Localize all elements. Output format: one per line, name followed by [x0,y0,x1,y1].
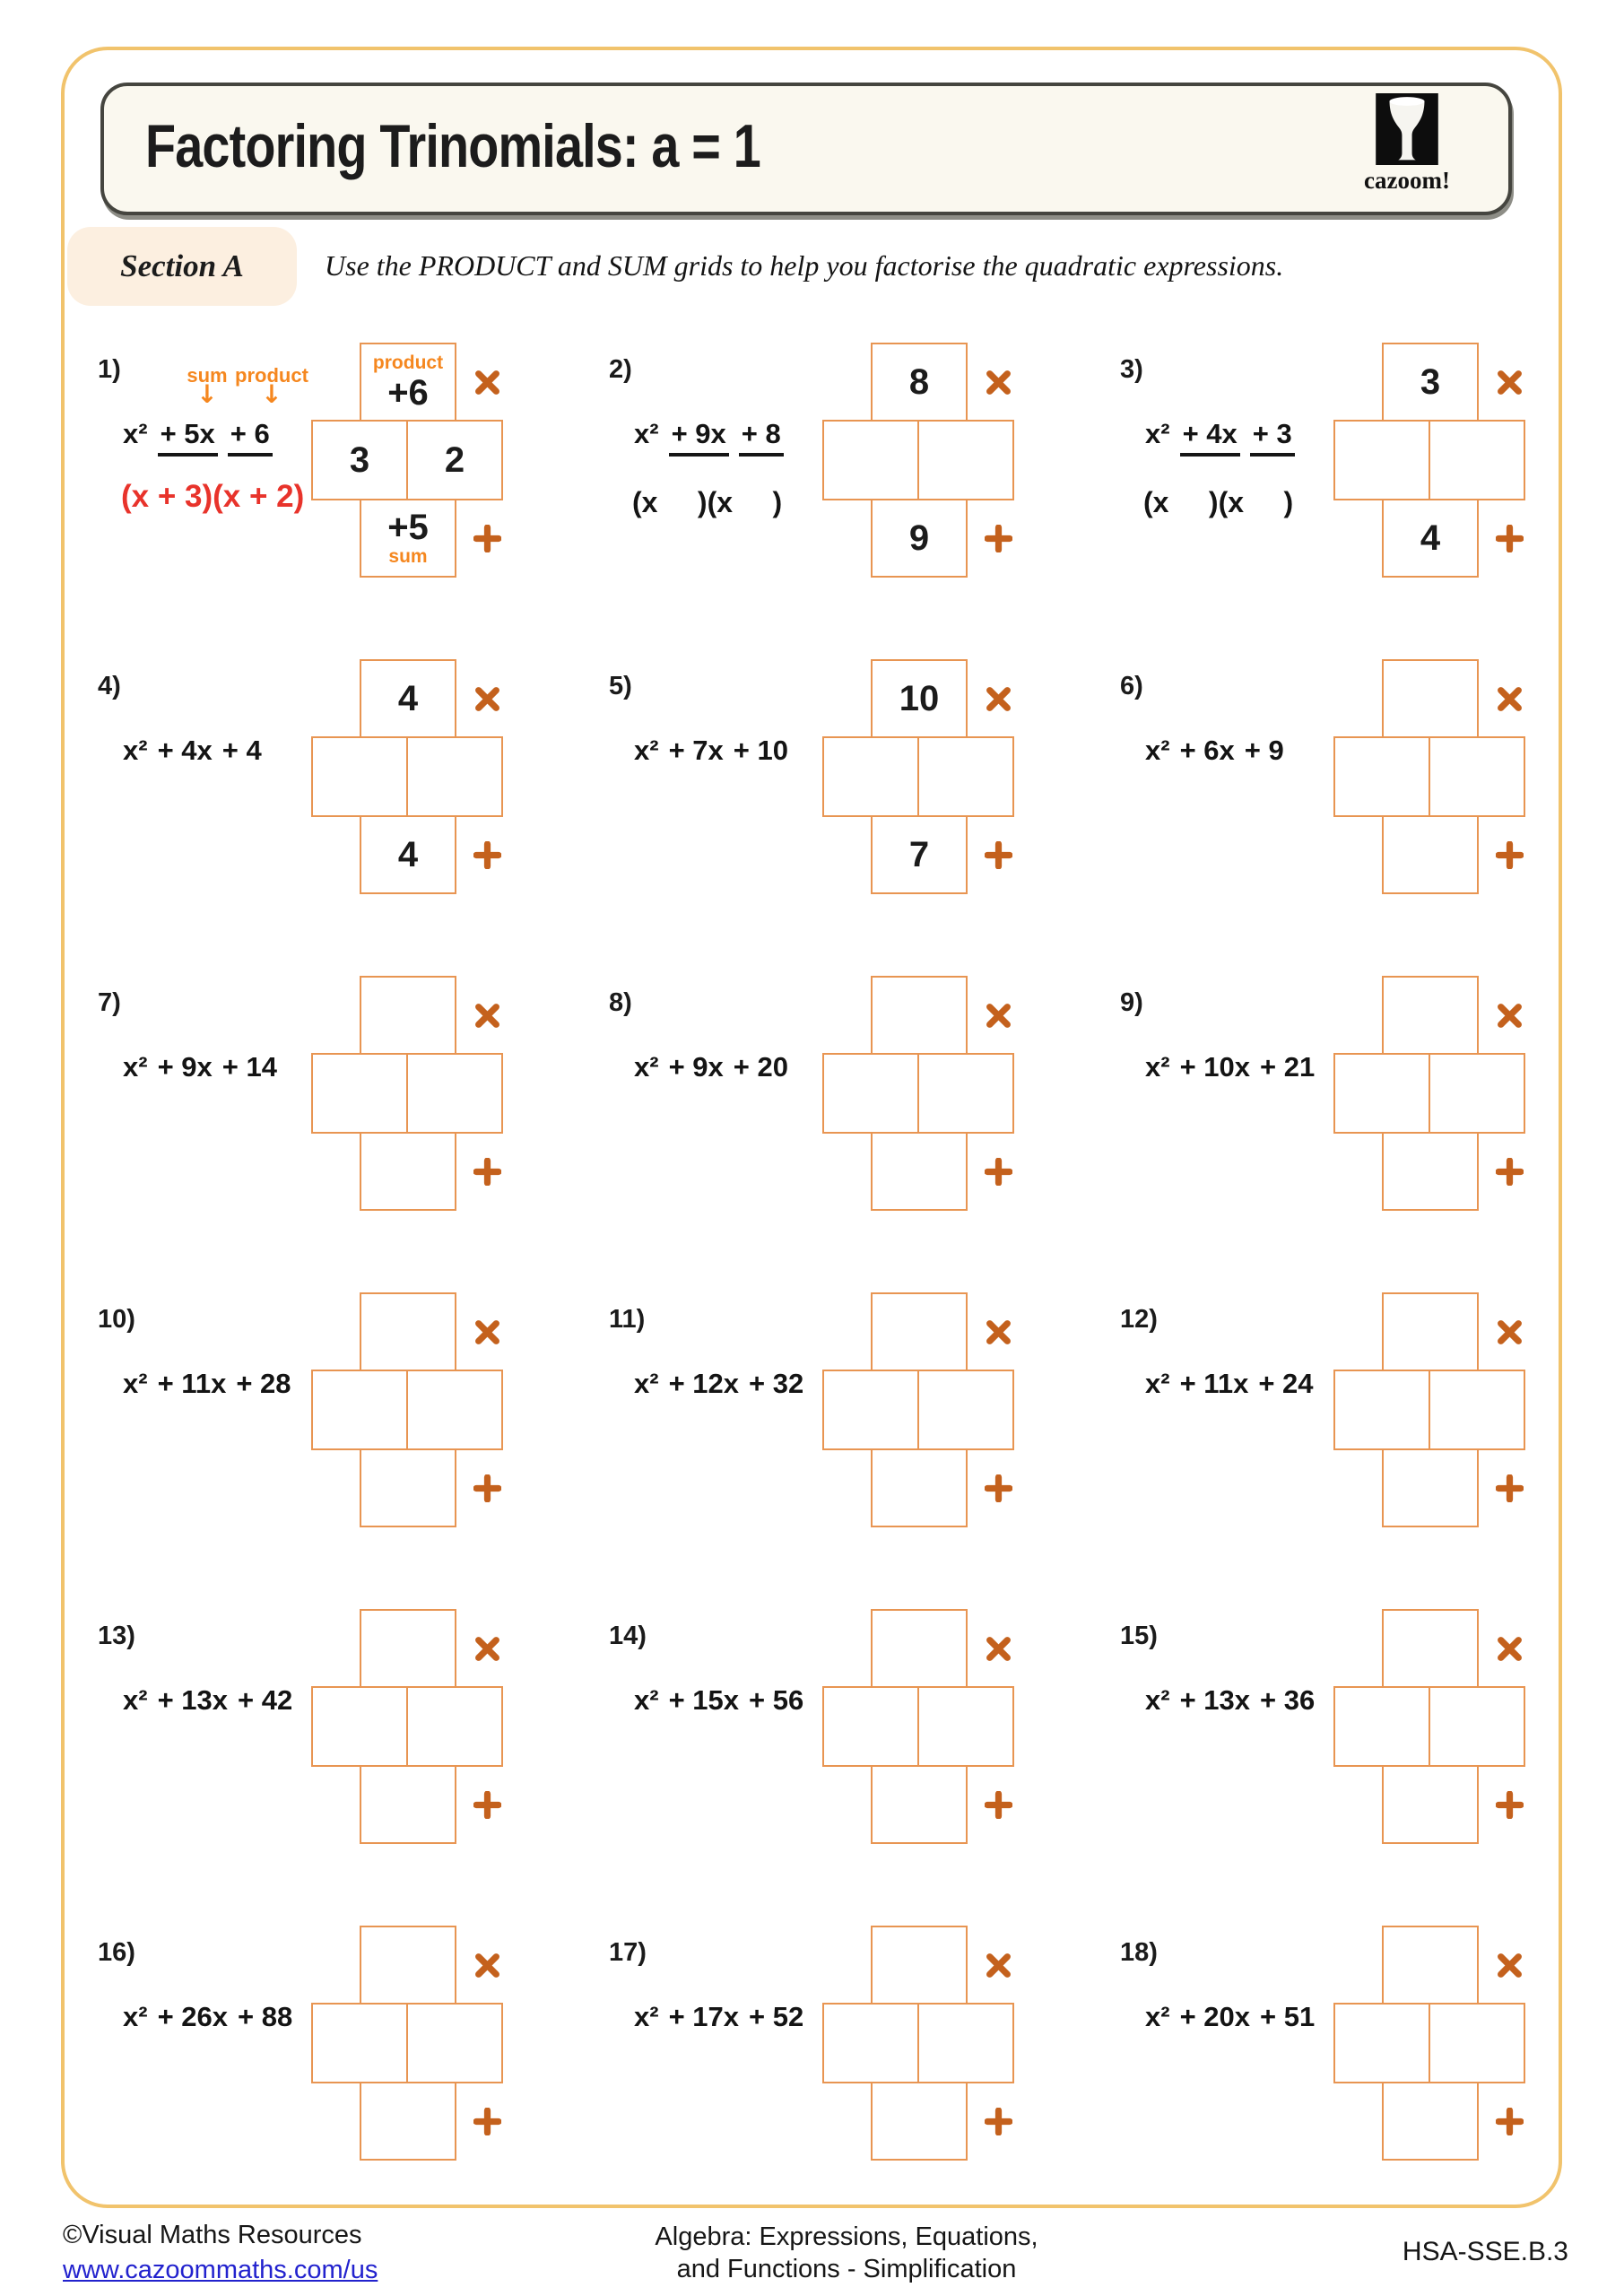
expression-term: + 5x [158,418,218,457]
expression-term: + 9x [669,418,729,457]
product-box [871,1292,968,1371]
expression-area: x²+ 11x+ 28 [121,1292,311,1561]
expression-term: x² [634,418,659,457]
plus-icon [1491,1448,1527,1527]
multiply-icon [980,1609,1016,1688]
product-sum-grid [1333,1609,1567,1844]
expression-term: + 24 [1258,1368,1313,1400]
quadratic-expression: x²+ 7x+ 10 [634,735,788,767]
expression-area: x²+ 17x+ 52 [632,1926,822,2195]
plus-icon [980,499,1016,578]
expression-area: x²+ 13x+ 36 [1143,1609,1333,1878]
expression-term: x² [123,1684,148,1717]
problem-cell: 16)x²+ 26x+ 88 [85,1926,596,2242]
product-sum-grid [311,976,544,1211]
problem-cell: 17)x²+ 17x+ 52 [596,1926,1107,2242]
section-label: Section A [120,248,244,284]
problem-cell: 6)x²+ 6x+ 9 [1107,659,1619,976]
factor-left-box [822,1053,919,1134]
product-box [1382,976,1479,1055]
sum-box [1382,1132,1479,1211]
plus-icon [980,1448,1016,1527]
product-box: 8 [871,343,968,422]
problem-cell: 3)x²+ 4x+ 3(x )(x )34 [1107,343,1619,659]
sum-box [1382,1448,1479,1527]
multiply-icon [1491,1292,1527,1371]
expression-term: + 6x [1180,735,1235,767]
multiply-icon [469,976,505,1055]
problem-number: 7) [98,988,121,1018]
expression-term: + 21 [1260,1051,1315,1083]
expression-term: + 36 [1260,1684,1315,1717]
product-value: 8 [909,363,929,401]
product-box [360,976,456,1055]
product-sum-grid: 107 [822,659,1055,894]
problem-cell: 4)x²+ 4x+ 444 [85,659,596,976]
section-banner: Section A [67,227,297,306]
multiply-icon [1491,1926,1527,2005]
expression-term: x² [634,1684,659,1717]
expression-term: + 9 [1245,735,1284,767]
page-title: Factoring Trinomials: a = 1 [145,111,760,181]
sum-box [360,1448,456,1527]
quadratic-expression: x²+ 6x+ 9 [1145,735,1284,767]
expression-term: + 4x [1180,418,1240,457]
expression-term: + 4x [158,735,213,767]
problem-cell: 15)x²+ 13x+ 36 [1107,1609,1619,1926]
sum-box: +5sum [360,499,456,578]
factor-right-box [406,1370,503,1450]
quadratic-expression: x²+ 11x+ 28 [123,1368,291,1400]
sum-value: 9 [909,519,929,557]
product-sum-grid [311,1292,544,1527]
subject-line-2: and Functions - Simplification [237,2253,1456,2285]
product-sum-grid [822,1926,1055,2161]
problem-cell: 2)x²+ 9x+ 8(x )(x )89 [596,343,1107,659]
problem-cell: 18)x²+ 20x+ 51 [1107,1926,1619,2242]
expression-area: x²+ 9x+ 14 [121,976,311,1245]
factor-right-box [1429,420,1525,500]
product-box: 3 [1382,343,1479,422]
sum-box-label: sum [388,546,427,567]
plus-icon [1491,499,1527,578]
standard-code: HSA-SSE.B.3 [1403,2237,1568,2267]
product-box: 4 [360,659,456,738]
product-box: product+6 [360,343,456,422]
factor-left-box [311,1686,408,1767]
factor-left-value: 3 [350,441,369,479]
factor-right-box [917,1370,1014,1450]
plus-icon [1491,1765,1527,1844]
factor-right-box [917,1053,1014,1134]
expression-term: + 20x [1180,2001,1250,2033]
multiply-icon [469,659,505,738]
quadratic-expression: x²+ 15x+ 56 [634,1684,803,1717]
product-box [360,1926,456,2005]
factor-left-box [1333,1053,1430,1134]
down-arrow-icon: ↓ [261,382,282,407]
factor-right-box [406,736,503,817]
problem-cell: 13)x²+ 13x+ 42 [85,1609,596,1926]
sum-box [1382,815,1479,894]
expression-area: x²+ 20x+ 51 [1143,1926,1333,2195]
expression-term: x² [634,1368,659,1400]
quadratic-expression: x²+ 17x+ 52 [634,2001,803,2033]
expression-term: + 11x [158,1368,227,1400]
expression-area: x²+ 6x+ 9 [1143,659,1333,928]
product-value: 10 [899,680,940,717]
expression-term: + 13x [1180,1684,1250,1717]
problem-cell: 14)x²+ 15x+ 56 [596,1609,1107,1926]
sum-box [1382,2082,1479,2161]
expression-term: + 26x [158,2001,228,2033]
factor-right-box: 2 [406,420,503,500]
multiply-icon [469,1926,505,2005]
product-sum-grid [1333,659,1567,894]
expression-area: x²+ 7x+ 10 [632,659,822,928]
plus-icon [1491,1132,1527,1211]
quadratic-expression: x²+ 12x+ 32 [634,1368,803,1400]
product-box [1382,1926,1479,2005]
expression-area: x²+ 4x+ 3(x )(x ) [1143,343,1333,612]
expression-term: x² [1145,418,1170,457]
sum-box [871,2082,968,2161]
expression-term: + 8 [739,418,784,457]
expression-term: + 9x [669,1051,724,1083]
quadratic-expression: x²+ 4x+ 4 [123,735,262,767]
expression-term: x² [634,2001,659,2033]
product-box [871,1609,968,1688]
product-value: 4 [398,680,418,717]
factor-left-box [822,420,919,500]
expression-term: + 51 [1260,2001,1315,2033]
sum-value: 7 [909,836,929,874]
product-sum-grid [822,976,1055,1211]
factor-right-box [917,1686,1014,1767]
expression-term: x² [123,735,148,767]
multiply-icon [980,659,1016,738]
sum-box [360,2082,456,2161]
quadratic-expression: x²+ 4x+ 3 [1145,418,1295,457]
sum-box [871,1765,968,1844]
expression-term: + 56 [749,1684,803,1717]
multiply-icon [980,1292,1016,1371]
expression-term: x² [123,2001,148,2033]
expression-term: + 52 [749,2001,803,2033]
multiply-icon [1491,976,1527,1055]
expression-term: x² [1145,2001,1170,2033]
plus-icon [469,1765,505,1844]
product-box: 10 [871,659,968,738]
factor-right-box [1429,1370,1525,1450]
cazoom-logo: cazoom! [1340,93,1474,195]
problem-cell: 8)x²+ 9x+ 20 [596,976,1107,1292]
expression-term: + 15x [669,1684,739,1717]
product-box [871,1926,968,2005]
expression-area: x²+ 4x+ 4 [121,659,311,928]
expression-term: + 6 [228,418,273,457]
quadratic-expression: x²+ 26x+ 88 [123,2001,292,2033]
sum-box [871,1448,968,1527]
expression-area: x²+ 15x+ 56 [632,1609,822,1878]
product-box-label: product [373,352,443,373]
product-value: +6 [387,374,429,412]
factor-right-box [1429,736,1525,817]
plus-icon [1491,815,1527,894]
product-box [1382,1292,1479,1371]
multiply-icon [469,1609,505,1688]
expression-term: + 9x [158,1051,213,1083]
plus-icon [469,499,505,578]
sum-value: 4 [398,836,418,874]
problem-cell: 7)x²+ 9x+ 14 [85,976,596,1292]
product-value: 3 [1420,363,1440,401]
sum-box [1382,1765,1479,1844]
quadratic-expression: x²+ 9x+ 14 [123,1051,277,1083]
problem-cell: 5)x²+ 7x+ 10107 [596,659,1107,976]
problems-grid: 1)sumproduct↓↓x²+ 5x+ 6(x + 3)(x + 2)pro… [85,343,1619,2242]
quadratic-expression: x²+ 9x+ 20 [634,1051,788,1083]
plus-icon [469,1132,505,1211]
product-box [1382,659,1479,738]
expression-term: + 17x [669,2001,739,2033]
problem-number: 6) [1120,672,1143,701]
plus-icon [469,1448,505,1527]
multiply-icon [980,343,1016,422]
expression-term: + 88 [238,2001,292,2033]
djembe-drum-icon [1376,93,1438,165]
problem-cell: 1)sumproduct↓↓x²+ 5x+ 6(x + 3)(x + 2)pro… [85,343,596,659]
problem-cell: 12)x²+ 11x+ 24 [1107,1292,1619,1609]
expression-term: x² [634,735,659,767]
footer-center: Algebra: Expressions, Equations, and Fun… [237,2221,1456,2286]
expression-term: + 32 [749,1368,803,1400]
factor-right-box [406,2003,503,2083]
expression-term: + 13x [158,1684,228,1717]
product-sum-grid: 34 [1333,343,1567,578]
factor-left-box [822,2003,919,2083]
factor-left-box [1333,1370,1430,1450]
problem-cell: 10)x²+ 11x+ 28 [85,1292,596,1609]
factor-left-box [311,736,408,817]
subject-line-1: Algebra: Expressions, Equations, [237,2221,1456,2253]
factor-left-box [1333,1686,1430,1767]
expression-area: x²+ 11x+ 24 [1143,1292,1333,1561]
cazoom-wordmark: cazoom! [1364,167,1450,195]
product-sum-grid: 44 [311,659,544,894]
example-factored-answer: (x + 3)(x + 2) [121,479,304,515]
factor-left-box [311,2003,408,2083]
multiply-icon [980,1926,1016,2005]
product-sum-grid [1333,1926,1567,2161]
sum-box: 4 [360,815,456,894]
expression-term: x² [1145,735,1170,767]
quadratic-expression: x²+ 13x+ 42 [123,1684,292,1717]
quadratic-expression: x²+ 5x+ 6 [123,418,273,457]
factor-left-box [822,1370,919,1450]
expression-area: x²+ 10x+ 21 [1143,976,1333,1245]
product-sum-grid [1333,976,1567,1211]
plus-icon [469,2082,505,2161]
expression-area: x²+ 26x+ 88 [121,1926,311,2195]
factor-right-box [917,736,1014,817]
problem-number: 9) [1120,988,1143,1018]
expression-term: + 12x [669,1368,739,1400]
title-box: Factoring Trinomials: a = 1 cazoom! [100,83,1512,215]
factored-form-blank: (x )(x ) [1143,486,1293,519]
multiply-icon [980,976,1016,1055]
product-sum-grid [311,1609,544,1844]
expression-term: + 11x [1180,1368,1249,1400]
expression-area: x²+ 9x+ 8(x )(x ) [632,343,822,612]
multiply-icon [469,1292,505,1371]
quadratic-expression: x²+ 11x+ 24 [1145,1368,1314,1400]
factor-left-box: 3 [311,420,408,500]
expression-term: + 7x [669,735,724,767]
product-box [1382,1609,1479,1688]
factor-right-value: 2 [445,441,465,479]
plus-icon [980,1132,1016,1211]
sum-box [360,1765,456,1844]
expression-term: x² [123,1051,148,1083]
factored-form-blank: (x )(x ) [632,486,782,519]
factor-right-box [917,2003,1014,2083]
expression-term: x² [1145,1368,1170,1400]
plus-icon [980,1765,1016,1844]
multiply-icon [1491,1609,1527,1688]
section-instruction: Use the PRODUCT and SUM grids to help yo… [325,249,1283,283]
expression-area: x²+ 12x+ 32 [632,1292,822,1561]
product-box [360,1609,456,1688]
sum-value: +5 [387,509,429,546]
problem-cell: 9)x²+ 10x+ 21 [1107,976,1619,1292]
factor-left-box [822,736,919,817]
factor-right-box [1429,2003,1525,2083]
sum-box: 4 [1382,499,1479,578]
expression-area: sumproduct↓↓x²+ 5x+ 6(x + 3)(x + 2) [121,343,311,612]
product-sum-grid: product+632+5sum [311,343,544,578]
expression-term: x² [123,1368,148,1400]
expression-area: x²+ 13x+ 42 [121,1609,311,1878]
expression-term: + 14 [222,1051,277,1083]
problem-number: 3) [1120,355,1143,385]
problem-number: 8) [609,988,632,1018]
multiply-icon [1491,343,1527,422]
multiply-icon [1491,659,1527,738]
quadratic-expression: x²+ 13x+ 36 [1145,1684,1315,1717]
expression-term: x² [123,418,148,457]
problem-number: 1) [98,355,121,385]
quadratic-expression: x²+ 20x+ 51 [1145,2001,1315,2033]
sum-box: 7 [871,815,968,894]
product-sum-grid [1333,1292,1567,1527]
expression-area: x²+ 9x+ 20 [632,976,822,1245]
expression-term: x² [634,1051,659,1083]
expression-term: + 3 [1250,418,1295,457]
factor-left-box [1333,420,1430,500]
expression-term: + 28 [236,1368,291,1400]
quadratic-expression: x²+ 9x+ 8 [634,418,784,457]
plus-icon [980,815,1016,894]
sum-value: 4 [1420,519,1440,557]
product-sum-grid [311,1926,544,2161]
expression-term: + 4 [222,735,262,767]
product-sum-grid [822,1292,1055,1527]
factor-right-box [917,420,1014,500]
problem-number: 2) [609,355,632,385]
factor-left-box [1333,736,1430,817]
factor-right-box [406,1053,503,1134]
product-sum-grid: 89 [822,343,1055,578]
product-sum-grid [822,1609,1055,1844]
expression-term: + 10 [734,735,788,767]
expression-term: x² [1145,1684,1170,1717]
sum-box [360,1132,456,1211]
plus-icon [469,815,505,894]
factor-right-box [1429,1053,1525,1134]
problem-number: 5) [609,672,632,701]
factor-left-box [822,1686,919,1767]
sum-box: 9 [871,499,968,578]
expression-term: x² [1145,1051,1170,1083]
plus-icon [980,2082,1016,2161]
expression-term: + 10x [1180,1051,1250,1083]
plus-icon [1491,2082,1527,2161]
factor-right-box [406,1686,503,1767]
problem-cell: 11)x²+ 12x+ 32 [596,1292,1107,1609]
factor-left-box [311,1053,408,1134]
expression-term: + 42 [238,1684,292,1717]
problem-number: 4) [98,672,121,701]
factor-left-box [311,1370,408,1450]
product-box [871,976,968,1055]
product-box [360,1292,456,1371]
multiply-icon [469,343,505,422]
factor-left-box [1333,2003,1430,2083]
expression-term: + 20 [734,1051,788,1083]
factor-right-box [1429,1686,1525,1767]
sum-box [871,1132,968,1211]
worksheet-page: { "header": { "title": "Factoring Trinom… [0,0,1624,2296]
down-arrow-icon: ↓ [196,382,217,407]
quadratic-expression: x²+ 10x+ 21 [1145,1051,1315,1083]
